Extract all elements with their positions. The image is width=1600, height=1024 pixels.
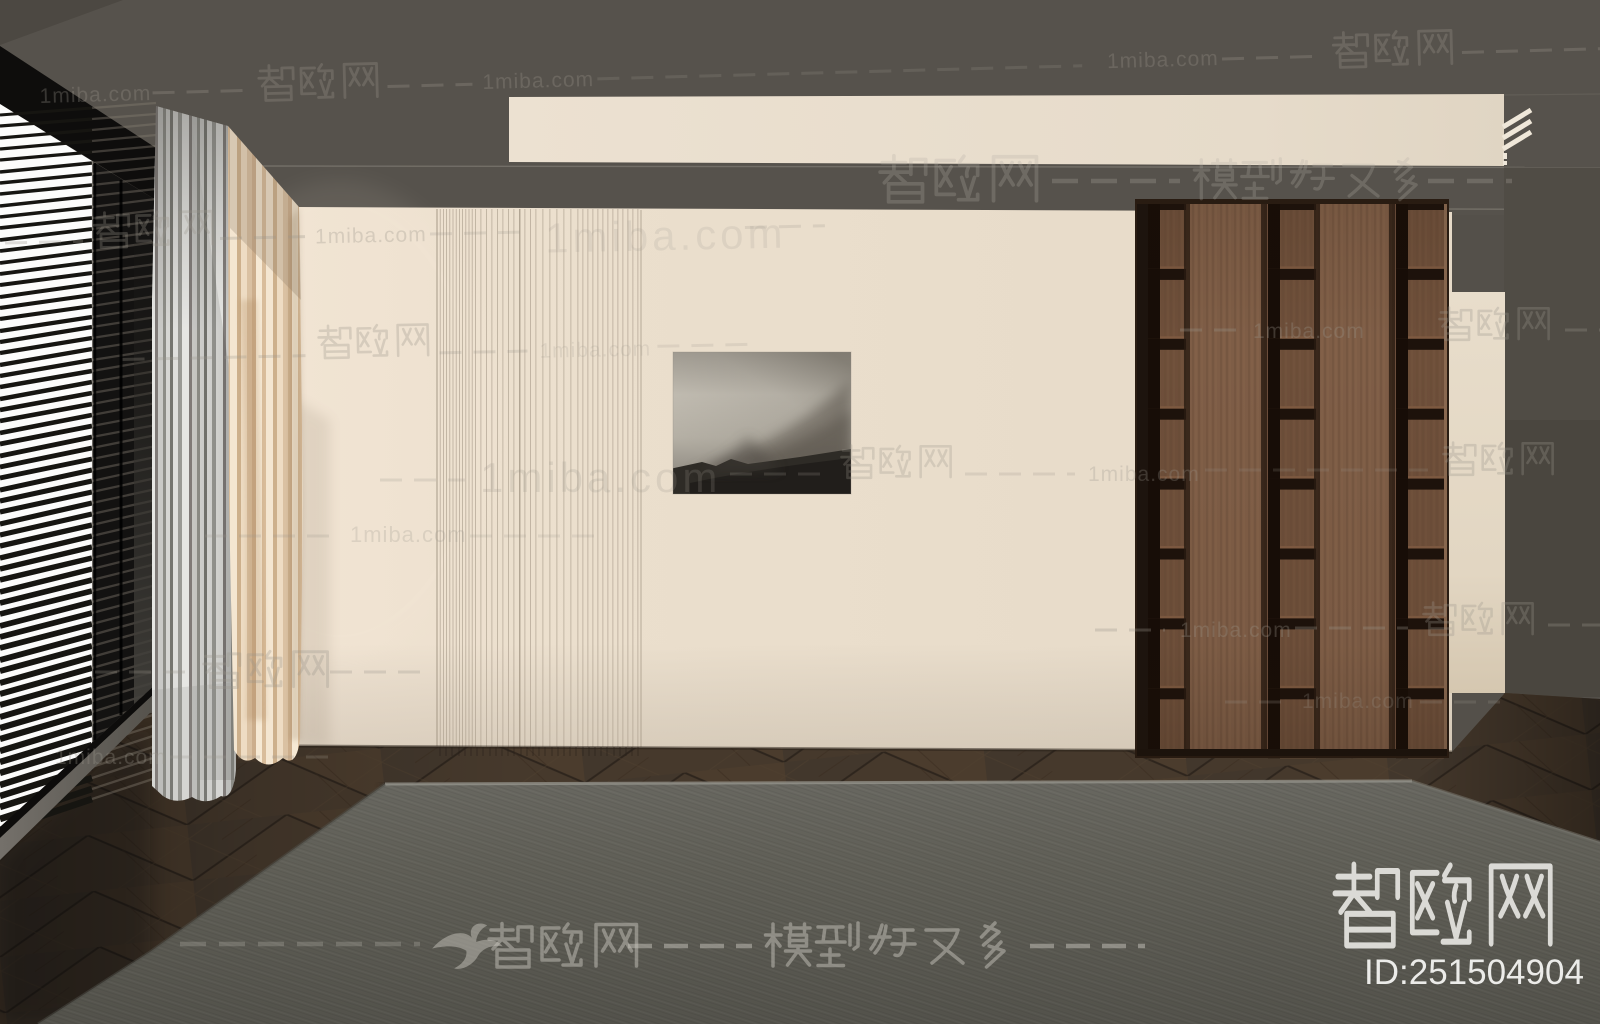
svg-text:1miba.com: 1miba.com [482, 68, 594, 94]
svg-text:1miba.com: 1miba.com [1302, 690, 1414, 713]
svg-text:1miba.com: 1miba.com [39, 82, 151, 108]
svg-text:1miba.com: 1miba.com [545, 210, 787, 262]
svg-text:1miba.com: 1miba.com [1180, 619, 1292, 642]
svg-text:1miba.com: 1miba.com [315, 223, 427, 248]
svg-text:ID:251504904: ID:251504904 [1364, 953, 1584, 992]
svg-text:1miba.com: 1miba.com [1253, 320, 1365, 343]
svg-text:1miba.com: 1miba.com [1107, 47, 1219, 73]
svg-text:1miba.com: 1miba.com [350, 522, 467, 547]
svg-text:1miba.com: 1miba.com [1088, 463, 1200, 486]
svg-text:1miba.com: 1miba.com [480, 454, 721, 501]
svg-text:1miba.com: 1miba.com [539, 337, 651, 362]
svg-text:1miba.com: 1miba.com [55, 746, 167, 769]
